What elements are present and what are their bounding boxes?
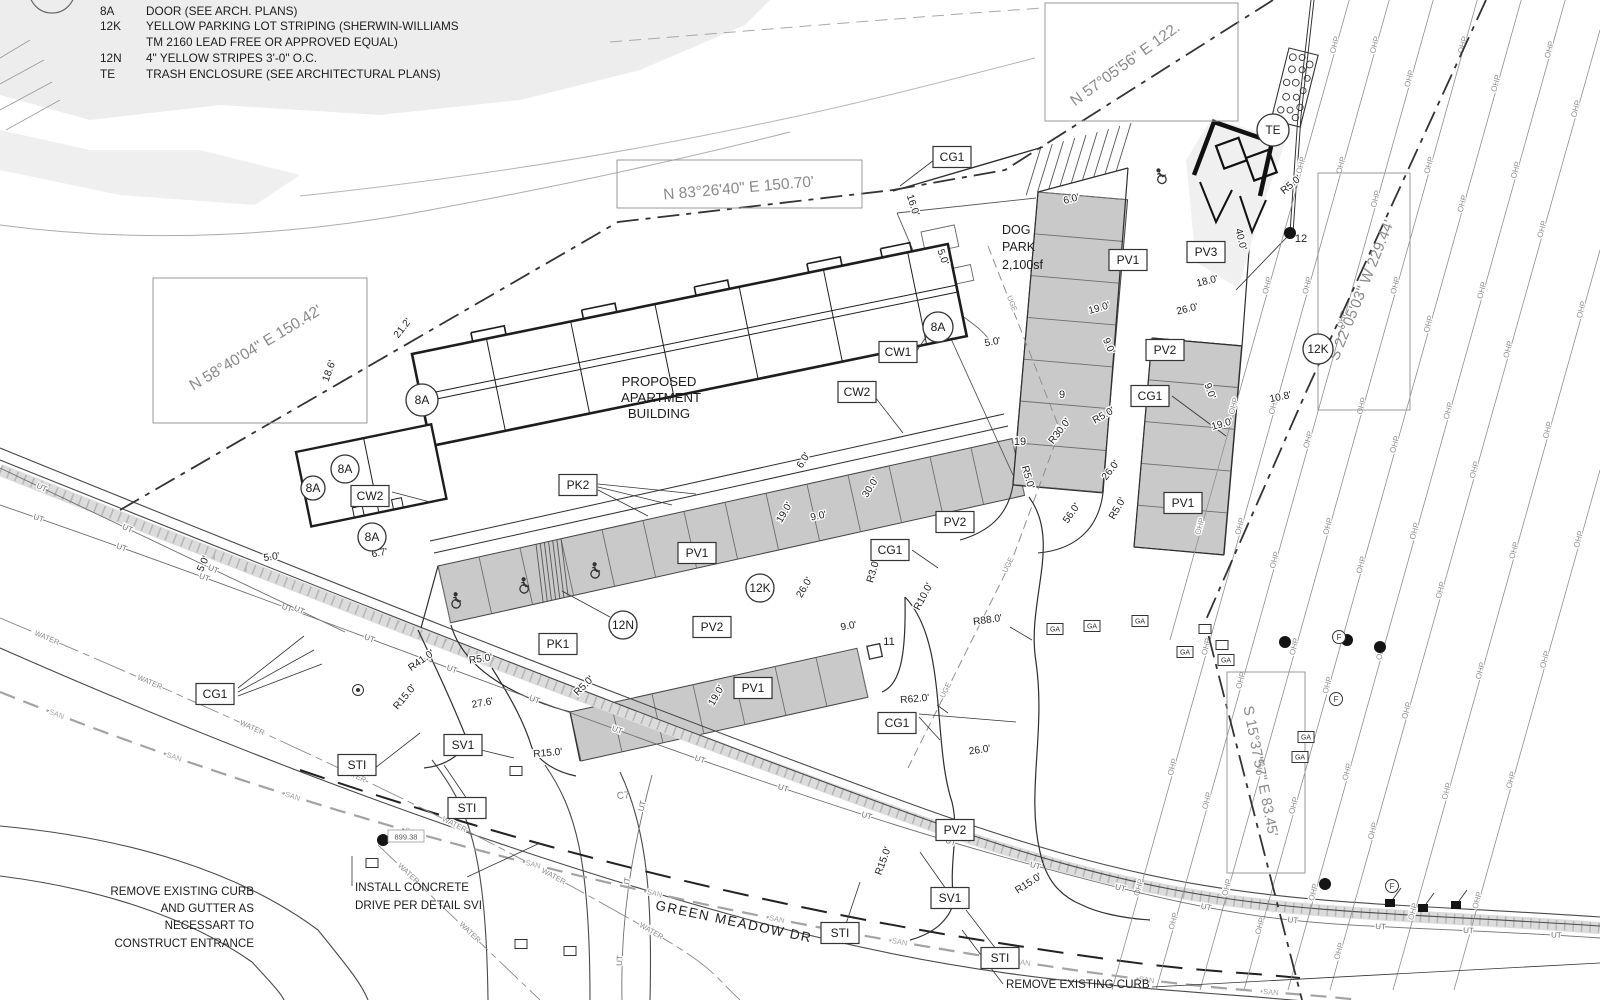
circle-label-text: 8A [365,530,380,544]
note-key: TE [100,67,146,83]
boxed-label-text: PV3 [1195,245,1218,259]
circle-label-8a: 8A [301,476,325,500]
utility-label-ohp: OHP [1442,401,1455,420]
boxed-label-cw1: CW1 [879,342,917,363]
leader-line [562,591,610,617]
utility-pole-symbol [377,834,389,846]
utility-label-ohp: OHP [1166,757,1179,776]
dimension-text: 26.0' [968,744,991,758]
boxed-label-cw2: CW2 [351,486,389,507]
bearing-text: N 57°05'56" E 122. [1067,19,1183,110]
utility-label-ohp: OHP [1369,189,1382,208]
dimension-text: 26.0' [795,576,815,600]
gas-meter-label: GA [1295,755,1305,762]
boxed-label-text: PV2 [944,823,967,837]
leader-line [875,397,903,433]
leader-line [1152,963,1600,987]
bearing-box-northwest: N 58°40'04" E 150.42' [153,278,367,423]
utility-label-ohp: OHP [1471,891,1484,910]
utility-label-ut: UT [1551,930,1562,940]
circle-label-te: TE [1257,114,1289,146]
gas-meter-label: GA [1221,658,1231,665]
utility-label-ohp: OHP [1456,194,1469,213]
utility-label-ohp: OHP [1261,276,1274,295]
utility-label-ut: UT [32,512,45,524]
utility-label-ohp: OHP [1408,522,1421,541]
circle-label-text: TE [1265,123,1280,137]
utility-label-ohp: OHP [1354,555,1367,574]
utility-label-ohp: OHP [1200,791,1213,810]
utility-box-symbol [515,940,527,949]
boxed-label-cg1: CG1 [878,713,916,734]
apartment-building-wing [296,424,446,526]
curve-reference: C7 [616,790,630,802]
boxed-label-cg1: CG1 [196,684,234,705]
utility-label-ohp: OHP [1253,916,1266,935]
dimension-text: 21.2' [392,316,414,340]
utility-line-ohp [1244,0,1524,990]
bearing-text: N 58°40'04" E 150.42' [187,302,325,394]
note-12k-cont: TM 2160 LEAD FREE OR APPROVED EQUAL) [100,35,459,51]
utility-label-ohp: OHP [1403,69,1416,88]
boxed-label-pv2: PV2 [936,512,974,533]
leader-line [919,717,940,740]
circle-label-8a: 8A [358,523,386,551]
utility-label-ut: UT [1375,922,1386,932]
utility-label-ut: UT [693,753,706,765]
flag-box-symbol [1451,901,1461,909]
boxed-label-sv1: SV1 [931,888,969,909]
dimension-text: R10.0' [912,581,935,612]
utility-box-symbol [1216,641,1228,650]
dimension-text: R5.0' [1107,496,1128,522]
site-plan-canvas: OHPOHPOHPOHPOHPOHPOHPOHPOHPOHPOHPOHPOHPO… [0,0,1600,1000]
utility-label-ohp: OHP [1502,340,1515,359]
boxed-label-text: PV1 [742,681,765,695]
utility-label-ohp: OHP [1328,35,1341,54]
boxed-label-sv1: SV1 [444,735,482,756]
leader-line [375,733,420,768]
dimension-text: 27.6' [471,696,494,711]
utility-label-ohp: OHP [1422,156,1435,175]
leader-line [238,636,304,688]
utility-label-san: SAN [165,750,183,764]
utility-label-san: SAN [891,936,908,948]
flag-box-symbol [1385,899,1395,907]
utility-label-water: WATER [638,920,666,941]
leader-line [920,852,946,889]
utility-line-ut [0,468,345,632]
stall-count-label: 19 [1014,436,1026,448]
utility-label-ut: UT [280,602,293,614]
spot-elevation: 899.38 [388,830,424,842]
utility-label-ut: UT [1029,860,1042,872]
stall-count-label: 9 [1059,389,1065,401]
handicap-head [1156,168,1162,174]
flag-box-symbol [1418,904,1428,912]
fiber-marker-label: F [1337,633,1342,642]
utility-label-ohp: OHP [1535,220,1548,239]
utility-label-ut: UT [115,541,128,553]
utility-label-ohp: OHP [1569,99,1582,118]
bearing-box-north: N 83°26'40" E 150.70' [617,160,862,208]
utility-label-ohp: OHP [1268,550,1281,569]
circle-label-12n: 12N [609,611,637,639]
dimension-text: 10.8' [1269,390,1293,405]
circle-label-8a: 8A [923,312,953,342]
dimension-text: 56.0' [1061,501,1083,525]
dimension-text: 6.0' [795,451,813,471]
circle-label-text: 8A [338,462,353,476]
utility-label-ohp: OHP [1366,821,1379,840]
bearing-box-northeast: N 57°05'56" E 122. [1045,3,1238,121]
utility-label-ohp: OHP [1234,671,1247,690]
side-street-east-curb [545,765,590,1000]
dimension-text: R15.0' [1013,871,1043,896]
note-text: YELLOW PARKING LOT STRIPING (SHERWIN-WIL… [146,19,459,33]
utility-label-san: SAN [284,790,301,803]
dimension-text: 18.0' [1195,274,1219,290]
dimension-text: R88.0' [972,613,1002,628]
bearing-text: S 22°05'03" W 229.44' [1326,218,1398,363]
dimension-text: 9.0' [840,620,858,634]
spot-elevation-text: 899.38 [395,833,418,842]
utility-label-ut: UT [363,632,376,644]
annotation-line: NECESSART TO [108,917,254,934]
boxed-label-text: SV1 [452,738,475,752]
annotation-line: CONSTRUCT ENTRANCE [108,935,254,952]
note-12n: 12N4" YELLOW STRIPES 3'-0" O.C. [100,51,459,67]
utility-label-ohp: OHP [1474,661,1487,680]
boxed-label-text: PK1 [547,637,570,651]
boxed-label-cg1: CG1 [933,147,971,168]
utility-label-ohp: OHP [1334,156,1347,175]
utility-label-ohp: OHP [1543,40,1556,59]
utility-label-ohp: OHP [1572,530,1585,549]
utility-label-water: WATER [33,628,61,647]
utility-box-symbol [510,767,522,776]
circle-label-8a: 8A [406,384,438,416]
utility-label-ohp: OHP [1341,762,1354,781]
boxed-label-pv2: PV2 [693,617,731,638]
utility-pole-symbol [1319,878,1331,890]
utility-label-ohp: OHP [1400,701,1413,720]
boxed-label-text: STI [348,758,367,772]
boxed-label-pv1: PV1 [1164,493,1202,514]
utility-label-san: SAN [1263,987,1279,997]
utility-pole-symbol [1284,227,1296,239]
circle-label-8a: 8A [331,455,359,483]
note-12k: 12KYELLOW PARKING LOT STRIPING (SHERWIN-… [100,19,459,35]
dimension-text: 16.0' [904,193,921,217]
stall-corner-mark [867,644,882,659]
utility-label-ohp: OHP [1541,420,1554,439]
boxed-label-pv1: PV1 [734,678,772,699]
note-key: 12N [100,51,146,67]
gas-meter-label: GA [1301,735,1311,742]
boxed-label-sti: STI [448,798,486,819]
utility-label-ohp: OHP [1389,276,1402,295]
dimension-text: 5.0' [984,336,1002,350]
leader-line [912,550,938,568]
utility-pole-symbol [1279,636,1291,648]
boxed-label-text: CG1 [878,543,903,557]
boxed-label-cw2: CW2 [838,382,876,403]
gas-meter-label: GA [1135,619,1145,626]
boxed-label-text: SV1 [939,891,962,905]
boxed-label-sti: STI [821,923,859,944]
flag-line [1459,890,1467,901]
leader-line [598,490,648,516]
boxed-label-pk1: PK1 [539,634,577,655]
utility-label-ohp: OHP [1388,435,1401,454]
boxed-label-pv1: PV1 [678,543,716,564]
boxed-label-text: CG1 [885,716,910,730]
fiber-marker-label: F [1390,882,1395,891]
bearing-text: N 83°26'40" E 150.70' [663,173,815,203]
utility-label-san: SAN [524,858,541,871]
leader-line [966,910,996,949]
boxed-label-text: STI [831,926,850,940]
note-8a: 8ADOOR (SEE ARCH. PLANS) [100,4,459,20]
dimension-text: R15.0' [873,846,893,877]
utility-label-ohp: OHP [1321,676,1334,695]
building-label-line1: PROPOSED [622,374,697,389]
utility-label-ohp: OHP [1368,35,1381,54]
annotation-remove-curb-gutter: REMOVE EXISTING CURB AND GUTTER AS NECES… [108,883,254,952]
annotation-line: AND GUTTER AS [108,900,254,917]
boxed-label-text: PV2 [944,515,967,529]
bearing-box-southeast: S 15°37'57" E 83.45' [1227,672,1305,873]
utility-label-ut: UT [777,782,790,794]
handicap-icon [1152,167,1168,186]
utility-label-uge: UGE [1005,294,1019,312]
utility-label-ut: UT [528,694,541,706]
circle-label-text: 8A [306,481,321,495]
annotation-line: REMOVE EXISTING CURB [108,883,254,900]
building-label-line3: BUILDING [628,406,690,421]
boxed-label-pk2: PK2 [559,475,597,496]
utility-label-ohp: OHP [1220,878,1233,897]
boxed-label-pv2: PV2 [1146,340,1184,361]
leader-line [1010,627,1032,640]
utility-label-ut: UT [1463,926,1474,935]
utility-label-ohp: OHP [1302,430,1315,449]
utility-label-ohp: OHP [1332,942,1345,961]
utility-line-ohp [1288,0,1568,990]
utility-pole-symbol [1374,641,1386,653]
utility-label-ut: UT [637,800,648,813]
dimension-text: 5.0' [263,551,281,564]
utility-label-ohp: OHP [1321,517,1334,536]
utility-label-water: WATER [136,673,164,692]
note-key: 12K [100,19,146,35]
utility-label-ut: UT [445,663,458,675]
note-key: 8A [100,4,146,20]
boxed-label-text: STI [991,951,1010,965]
boxed-label-text: PV1 [1117,253,1140,267]
circle-label-text: 12K [749,581,770,595]
building-label-line2: APARTMENT [621,390,701,405]
boxed-label-text: PV2 [1154,343,1177,357]
fiber-marker-label: F [1334,695,1339,704]
dog-park-label-line2: PARK [1002,240,1036,254]
shoreline-band-2 [0,130,300,205]
utility-box-symbol [564,947,576,956]
boxed-label-text: PK2 [567,478,590,492]
stall-count-label: 12 [1295,233,1307,245]
utility-label-ohp: OHP [1422,314,1435,333]
utility-label-ohp: OHP [1440,782,1453,801]
utility-label-ut: UT [1287,915,1299,925]
utility-box-symbol [366,859,378,868]
note-text: TRASH ENCLOSURE (SEE ARCHITECTURAL PLANS… [146,67,441,81]
gas-meter-label: GA [1050,627,1060,634]
utility-label-water: WATER [238,718,266,737]
boxed-label-text: CW2 [357,489,384,503]
gas-meter-label: GA [1180,650,1190,657]
stall-count-label: 11 [883,636,894,648]
utility-label-ohp: OHP [1575,300,1588,319]
boxed-label-sti: STI [981,948,1019,969]
note-te: TETRASH ENCLOSURE (SEE ARCHITECTURAL PLA… [100,67,459,83]
boxed-label-text: CG1 [203,687,228,701]
dimension-text: R15.0' [533,747,563,761]
street-name: GREEN MEADOW DR [654,898,813,946]
circle-label-12k: 12K [746,574,774,602]
boxed-label-pv2: PV2 [936,820,974,841]
utility-label-water: WATER [457,920,483,945]
utility-label-ohp: OHP [1468,460,1481,479]
utility-line-ohp [1330,30,1600,990]
boxed-label-text: CG1 [940,150,965,164]
boxed-label-text: PV2 [701,620,724,634]
boxed-label-cg1: CG1 [871,540,909,561]
utility-label-ohp: OHP [1538,650,1551,669]
utility-label-ohp: OHP [1507,541,1520,560]
utility-label-ut: UT [1114,882,1127,893]
leader-line [481,750,514,758]
utility-label-ohp: OHP [1287,796,1300,815]
utility-line-ohp [1393,250,1600,990]
note-text: TM 2160 LEAD FREE OR APPROVED EQUAL) [146,35,398,49]
annotation-remove-curb: REMOVE EXISTING CURB [1006,978,1150,991]
dimension-text: 18.6' [321,359,339,383]
dimension-text: R5.0' [1279,173,1304,197]
utility-label-ohp: OHP [1167,912,1180,931]
boxed-label-text: CW1 [885,345,912,359]
circle-label-text: 8A [931,320,946,334]
circle-label-text: 8A [415,393,430,407]
boxed-label-pv1: PV1 [1109,250,1147,271]
utility-label-ut: UT [615,955,624,966]
utility-label-uge: UGE [1000,556,1015,575]
note-text: 4" YELLOW STRIPES 3'-0" O.C. [146,51,317,65]
utility-label-ohp: OHP [1294,156,1307,175]
monument-center [356,688,360,692]
boxed-label-text: STI [458,801,477,815]
note-text: DOOR (SEE ARCH. PLANS) [146,4,297,18]
gas-meter-label: GA [1087,624,1097,631]
boxed-label-text: CW2 [844,385,871,399]
utility-label-uge: UGE [938,681,953,700]
dimension-text: R15.0' [392,683,419,712]
boxed-label-text: PV1 [686,546,709,560]
dimension-text: R3.0' [865,558,882,584]
utility-label-ohp: OHP [1489,74,1502,93]
leader-line [900,160,934,186]
utility-label-ohp: OHP [1301,276,1314,295]
circle-label-text: 12N [612,618,634,632]
annotation-install-drive: INSTALL CONCRETE DRIVE PER DETAIL SVI [355,879,525,914]
annotation-line: INSTALL CONCRETE [355,879,525,897]
boxed-label-cg1: CG1 [1131,386,1169,407]
boxed-label-pv3: PV3 [1187,242,1225,263]
dimension-text: 26.0' [1175,302,1199,318]
utility-label-ohp: OHP [1355,396,1368,415]
parking-band [1134,338,1242,555]
utility-label-ohp: OHP [1509,160,1522,179]
utility-label-ohp: OHP [1475,281,1488,300]
dog-park-label-line3: 2,100sf [1002,258,1044,272]
annotation-line: DRIVE PER DETAIL SVI [355,897,525,915]
circle-label-text: 12K [1307,342,1328,356]
utility-label-ohp: OHP [1504,770,1517,789]
parking-areas [438,123,1242,761]
notes-legend: NOTES: 8ADOOR (SEE ARCH. PLANS) 12KYELLO… [100,0,459,82]
utility-label-ut: UT [860,810,873,822]
boxed-label-text: PV1 [1172,496,1195,510]
boxed-label-sti: STI [338,755,376,776]
dog-park-label-line1: DOG [1002,223,1030,237]
utility-label-san: SAN [48,707,66,721]
flag-line [1426,893,1434,904]
circle-label-12k: 12K [1303,334,1333,364]
utility-label-ohp: OHP [1434,581,1447,600]
utility-label-ohp: OHP [1307,883,1320,902]
utility-label-ut: UT [1200,902,1212,913]
dimension-text: R62.0' [900,693,930,707]
site-plan-page: OHPOHPOHPOHPOHPOHPOHPOHPOHPOHPOHPOHPOHPO… [0,0,1600,1000]
utility-box-symbol [1199,625,1211,634]
boxed-label-text: CG1 [1138,389,1163,403]
